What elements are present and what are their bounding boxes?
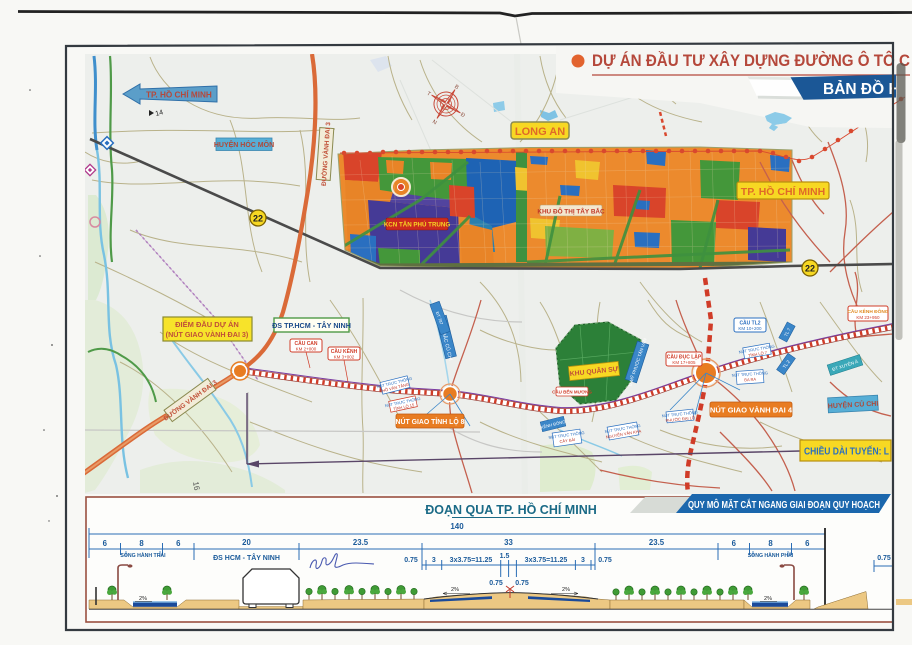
- svg-text:3: 3: [581, 557, 585, 564]
- svg-text:TP. HỒ CHÍ MINH: TP. HỒ CHÍ MINH: [741, 185, 825, 198]
- svg-text:BẢN ĐỒ H: BẢN ĐỒ H: [823, 80, 900, 98]
- svg-text:6: 6: [103, 539, 108, 548]
- svg-text:TP. HỒ CHÍ MINH: TP. HỒ CHÍ MINH: [146, 89, 212, 100]
- svg-text:KM 10+200: KM 10+200: [738, 326, 762, 331]
- svg-text:SONG HÀNH PHẢI: SONG HÀNH PHẢI: [748, 552, 794, 559]
- svg-text:HUYỆN HÓC MÔN: HUYỆN HÓC MÔN: [214, 140, 274, 149]
- svg-text:DỰ ÁN ĐẦU TƯ XÂY DỰNG ĐƯỜNG Ô: DỰ ÁN ĐẦU TƯ XÂY DỰNG ĐƯỜNG Ô TÔ C: [592, 51, 910, 70]
- svg-text:KHU ĐÔ THỊ TÂY BẮC: KHU ĐÔ THỊ TÂY BẮC: [537, 207, 605, 216]
- svg-text:BA RA: BA RA: [744, 377, 756, 383]
- svg-text:0.75: 0.75: [515, 580, 529, 587]
- svg-text:(NÚT GIAO VÀNH ĐAI 3): (NÚT GIAO VÀNH ĐAI 3): [166, 330, 249, 339]
- svg-text:3x3.75=11.25: 3x3.75=11.25: [525, 557, 568, 564]
- svg-text:20: 20: [242, 538, 251, 547]
- svg-text:3x3.75=11.25: 3x3.75=11.25: [450, 557, 493, 564]
- svg-text:2%: 2%: [451, 587, 459, 593]
- svg-text:0.75: 0.75: [877, 555, 891, 562]
- svg-text:ĐOẠN QUA TP. HỒ CHÍ MINH: ĐOẠN QUA TP. HỒ CHÍ MINH: [425, 502, 597, 517]
- svg-text:CHIỀU DÀI TUYẾN: L: CHIỀU DÀI TUYẾN: L: [804, 445, 889, 458]
- svg-text:0.75: 0.75: [598, 557, 612, 564]
- svg-text:3: 3: [432, 557, 436, 564]
- svg-text:NÚT GIAO VÀNH ĐAI 4: NÚT GIAO VÀNH ĐAI 4: [710, 406, 793, 415]
- svg-text:2%: 2%: [764, 596, 772, 602]
- svg-text:QUY MÔ MẶT CẮT NGANG GIAI ĐOẠN: QUY MÔ MẶT CẮT NGANG GIAI ĐOẠN QUY HOẠCH: [688, 498, 880, 511]
- svg-text:ĐIỂM ĐẦU DỰ ÁN: ĐIỂM ĐẦU DỰ ÁN: [175, 319, 239, 329]
- svg-text:CẦU BẾN MƯƠNG: CẦU BẾN MƯƠNG: [552, 389, 592, 395]
- svg-text:22: 22: [805, 264, 815, 274]
- svg-text:SONG HÀNH TRÁI: SONG HÀNH TRÁI: [120, 552, 166, 559]
- svg-text:0.75: 0.75: [404, 557, 418, 564]
- svg-text:8: 8: [768, 539, 773, 548]
- svg-text:KM 17+805: KM 17+805: [672, 360, 696, 365]
- svg-text:2%: 2%: [139, 596, 147, 602]
- svg-text:23.5: 23.5: [353, 538, 369, 547]
- svg-text:KCN TÂN PHÚ TRUNG: KCN TÂN PHÚ TRUNG: [384, 222, 451, 229]
- svg-text:8: 8: [139, 539, 144, 548]
- svg-text:1.5: 1.5: [500, 553, 510, 560]
- svg-text:140: 140: [450, 522, 464, 531]
- svg-text:22: 22: [253, 214, 263, 224]
- svg-text:KM 2+000: KM 2+000: [296, 347, 317, 352]
- svg-text:0.75: 0.75: [489, 580, 503, 587]
- svg-text:23.5: 23.5: [649, 538, 665, 547]
- svg-text:2%: 2%: [562, 587, 570, 593]
- svg-text:6: 6: [176, 539, 181, 548]
- svg-text:33: 33: [504, 538, 513, 547]
- svg-text:NÚT GIAO TỈNH LỘ 8: NÚT GIAO TỈNH LỘ 8: [396, 417, 465, 426]
- svg-text:KM 23+950: KM 23+950: [856, 315, 880, 320]
- svg-text:ĐS HCM - TÂY NINH: ĐS HCM - TÂY NINH: [213, 553, 280, 562]
- svg-text:6: 6: [805, 539, 810, 548]
- svg-text:ĐS TP.HCM - TÂY NINH: ĐS TP.HCM - TÂY NINH: [272, 321, 351, 330]
- svg-text:LONG AN: LONG AN: [515, 126, 565, 138]
- svg-text:6: 6: [732, 539, 737, 548]
- svg-text:KM 3+002: KM 3+002: [334, 355, 355, 360]
